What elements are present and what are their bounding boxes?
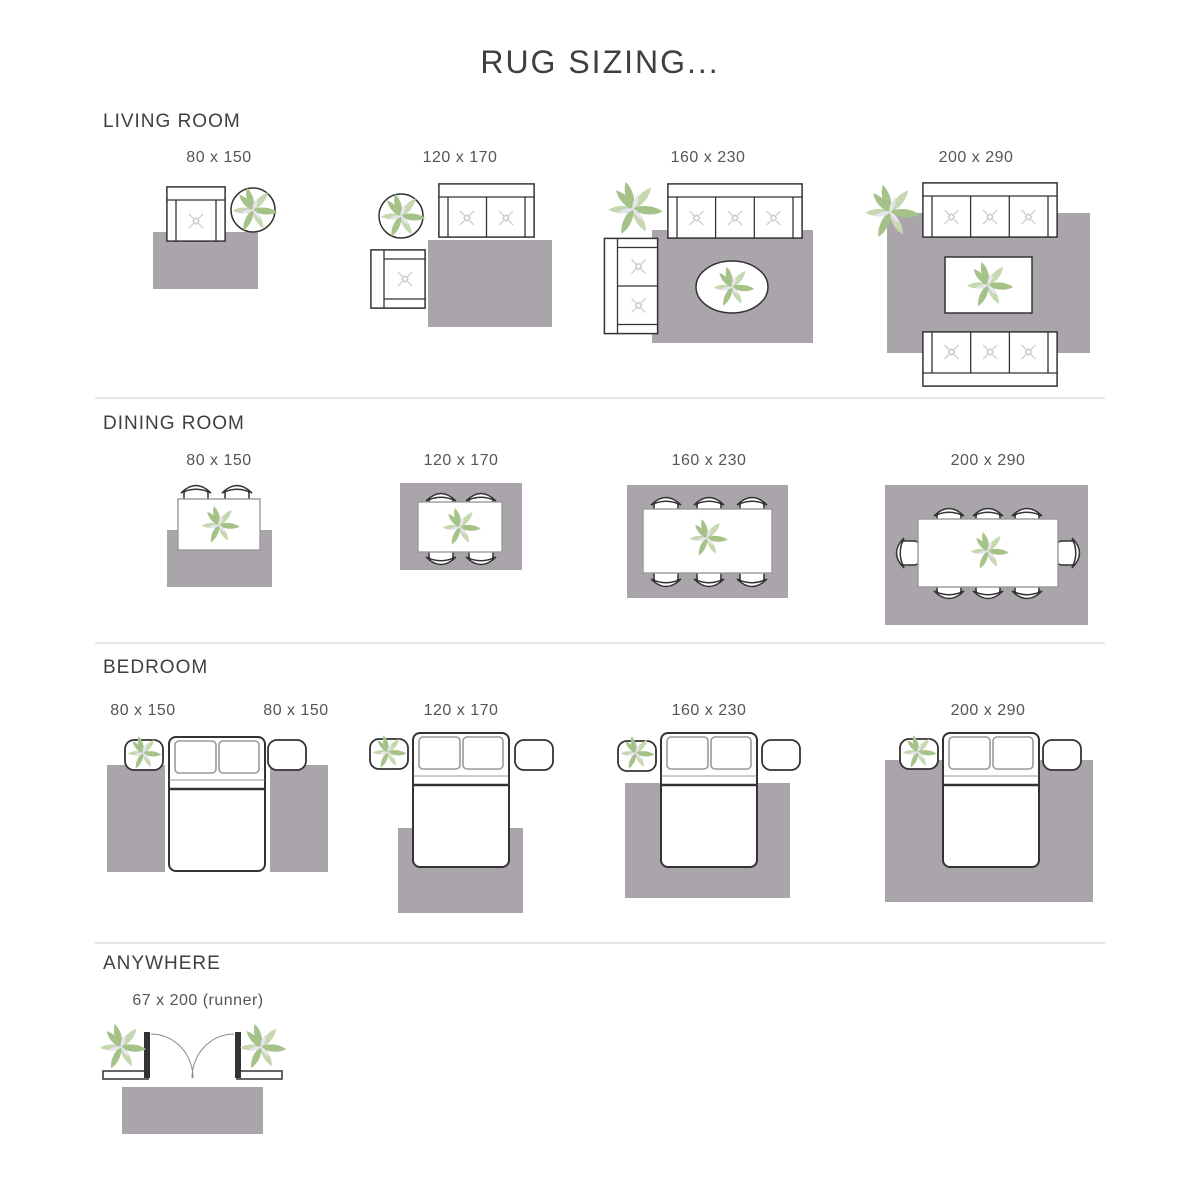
- diagram-living-120x170: [371, 184, 552, 327]
- nightstand-icon: [515, 740, 553, 770]
- loveseat-icon: [604, 238, 657, 333]
- dining-chair-icon: [897, 538, 921, 568]
- diagram-living-200x290: [865, 183, 1090, 386]
- armchair-icon: [371, 250, 425, 308]
- diagram-dining-160x230: [627, 485, 788, 598]
- diagram-bedroom-200x290: [885, 733, 1093, 902]
- diagram-dining-80x150: [167, 486, 272, 588]
- diagram-bedroom-120x170: [370, 733, 553, 913]
- loveseat-icon: [439, 184, 534, 237]
- rug-sizing-infographic: RUG SIZING... LIVING ROOM DINING ROOM BE…: [0, 0, 1200, 1200]
- bed-icon: [413, 733, 509, 867]
- rug-swatch: [428, 240, 552, 327]
- nightstand-icon: [762, 740, 800, 770]
- diagram-living-80x150: [153, 187, 278, 289]
- potted-plant-icon: [231, 187, 278, 232]
- rug-swatch: [270, 765, 328, 872]
- diagram-bedroom-80x150: [107, 736, 328, 872]
- diagram-dining-200x290: [885, 485, 1088, 625]
- diagram-bedroom-160x230: [618, 733, 800, 898]
- diagram-anywhere-runner: [100, 1023, 286, 1134]
- bed-icon: [661, 733, 757, 867]
- sofa-icon: [923, 183, 1057, 237]
- dining-chair-icon: [1056, 538, 1080, 568]
- sofa-icon: [923, 332, 1057, 386]
- rug-swatch: [122, 1087, 263, 1134]
- rug-swatch: [107, 765, 165, 872]
- diagram-living-160x230: [604, 181, 813, 343]
- armchair-icon: [167, 187, 225, 241]
- nightstand-icon: [268, 740, 306, 770]
- diagram-dining-120x170: [400, 483, 522, 570]
- nightstand-icon: [1043, 740, 1081, 770]
- bed-icon: [169, 737, 265, 871]
- diagrams-canvas: [0, 0, 1200, 1200]
- plant-icon: [240, 1023, 286, 1069]
- plant-icon: [100, 1023, 146, 1069]
- plant-icon: [608, 181, 663, 236]
- bed-icon: [943, 733, 1039, 867]
- potted-plant-icon: [379, 193, 426, 238]
- sofa-icon: [668, 184, 802, 238]
